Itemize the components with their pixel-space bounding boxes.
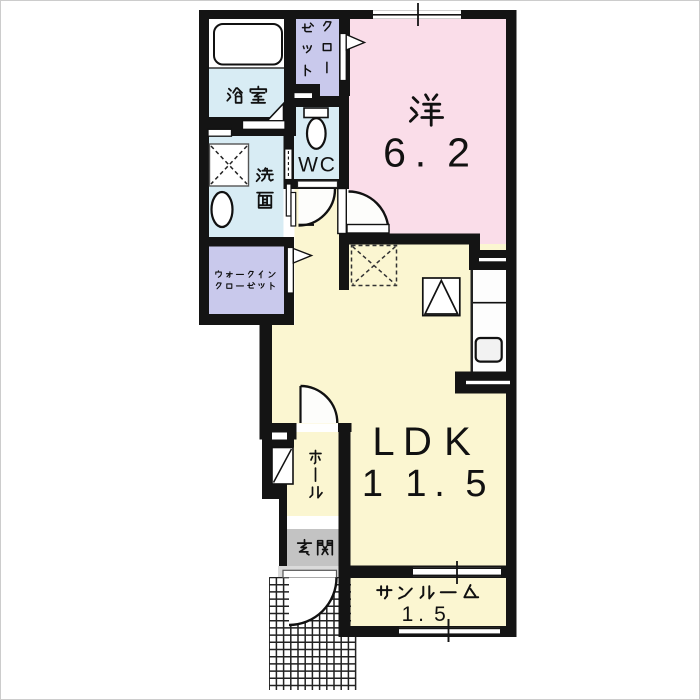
svg-text:L: L [372,420,394,464]
svg-text:1: 1 [405,463,426,505]
svg-text:.: . [434,463,445,505]
svg-text:.: . [415,130,426,176]
svg-text:.: . [418,603,424,626]
svg-text:1: 1 [402,603,414,626]
svg-text:K: K [444,420,471,464]
svg-text:1: 1 [362,463,383,505]
svg-text:6: 6 [383,130,406,176]
svg-text:5: 5 [465,463,486,505]
svg-text:D: D [403,420,432,464]
svg-text:W C: W C [298,154,335,177]
svg-text:2: 2 [447,130,470,176]
svg-text:5: 5 [434,603,446,626]
